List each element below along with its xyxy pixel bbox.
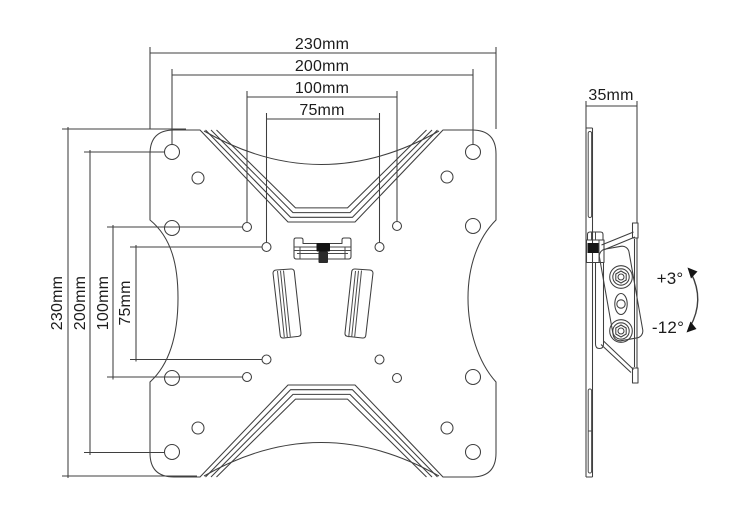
tilt-bolt-bottom bbox=[610, 320, 633, 343]
side-latch-clip bbox=[588, 243, 599, 253]
vesa-hole bbox=[393, 374, 402, 383]
tilt-angle-down-label: -12° bbox=[652, 318, 684, 337]
vesa-hole bbox=[243, 373, 252, 382]
vesa-hole bbox=[243, 223, 252, 232]
adjustment-slot bbox=[615, 294, 627, 315]
tilt-angle-up-label: +3° bbox=[657, 269, 684, 288]
side-view: 35mm bbox=[586, 87, 698, 477]
front-view: 230mm 200mm 100mm 75mm 230mm 200mm 100mm… bbox=[49, 36, 496, 478]
side-latch bbox=[587, 232, 605, 263]
tilt-annotation: +3° -12° bbox=[652, 268, 698, 338]
vesa-hole bbox=[375, 243, 384, 252]
dim-label-height-230mm: 230mm bbox=[49, 276, 66, 330]
bracket-bottom-arm bbox=[601, 341, 634, 373]
vesa-hole bbox=[192, 172, 204, 184]
hook-slot-left bbox=[273, 269, 301, 338]
drawing-svg: 230mm 200mm 100mm 75mm 230mm 200mm 100mm… bbox=[0, 0, 750, 510]
vesa-holes bbox=[165, 145, 481, 460]
hook-slot-right bbox=[345, 269, 373, 338]
vesa-hole bbox=[441, 171, 453, 183]
hex-nut-icon bbox=[616, 271, 626, 283]
side-rib-top bbox=[588, 132, 591, 218]
latch-clip-tail bbox=[319, 252, 329, 264]
vesa-hole bbox=[165, 221, 180, 236]
vesa-hole bbox=[466, 219, 481, 234]
dim-label-height-100mm: 100mm bbox=[95, 276, 112, 330]
dimensions-vertical: 230mm 200mm 100mm 75mm bbox=[49, 127, 262, 478]
dim-label-width-230mm: 230mm bbox=[295, 36, 349, 53]
tilt-arrow-head-up-icon bbox=[688, 268, 698, 279]
vesa-hole bbox=[375, 355, 384, 364]
vesa-hole bbox=[165, 445, 180, 460]
vesa-hole bbox=[165, 371, 180, 386]
dim-label-width-200mm: 200mm bbox=[295, 58, 349, 75]
dimensions-horizontal: 230mm 200mm 100mm 75mm bbox=[150, 36, 496, 242]
vesa-hole bbox=[393, 222, 402, 231]
tilt-bolt-top bbox=[610, 266, 633, 289]
vesa-hole bbox=[165, 145, 180, 160]
dim-lines-75mm-v bbox=[130, 245, 262, 362]
dimension-depth: 35mm bbox=[586, 87, 637, 223]
dim-lines-35mm bbox=[586, 101, 637, 223]
tilt-mechanism bbox=[610, 266, 633, 343]
vesa-hole bbox=[262, 355, 271, 364]
dim-lines-75mm-h bbox=[267, 113, 380, 242]
dim-label-height-200mm: 200mm bbox=[72, 276, 89, 330]
center-latch bbox=[294, 238, 351, 263]
top-sheet-arc bbox=[204, 131, 439, 165]
technical-drawing: 230mm 200mm 100mm 75mm 230mm 200mm 100mm… bbox=[0, 0, 750, 510]
vesa-hole bbox=[466, 145, 481, 160]
wall-bracket bbox=[596, 223, 644, 383]
dim-label-width-75mm: 75mm bbox=[299, 102, 344, 119]
vesa-hole bbox=[262, 243, 271, 252]
dim-label-height-75mm: 75mm bbox=[117, 280, 134, 325]
bracket-tab-top bbox=[633, 223, 639, 238]
hex-nut-icon bbox=[616, 325, 626, 337]
vesa-hole bbox=[466, 445, 481, 460]
latch-clip bbox=[317, 243, 331, 252]
vesa-hole bbox=[466, 370, 481, 385]
bottom-sheet-arc bbox=[204, 443, 439, 477]
vesa-hole bbox=[192, 422, 204, 434]
bracket-tab-bottom bbox=[633, 368, 639, 383]
dim-label-width-100mm: 100mm bbox=[295, 80, 349, 97]
tilt-arrow-head-down-icon bbox=[687, 322, 697, 333]
bottom-bend-ribs bbox=[204, 390, 439, 477]
side-plate-profile bbox=[586, 101, 593, 477]
tilt-arrow-arc bbox=[690, 273, 698, 327]
top-bend-ribs bbox=[204, 130, 439, 217]
vesa-hole bbox=[441, 422, 453, 434]
dim-label-depth-35mm: 35mm bbox=[588, 87, 633, 104]
